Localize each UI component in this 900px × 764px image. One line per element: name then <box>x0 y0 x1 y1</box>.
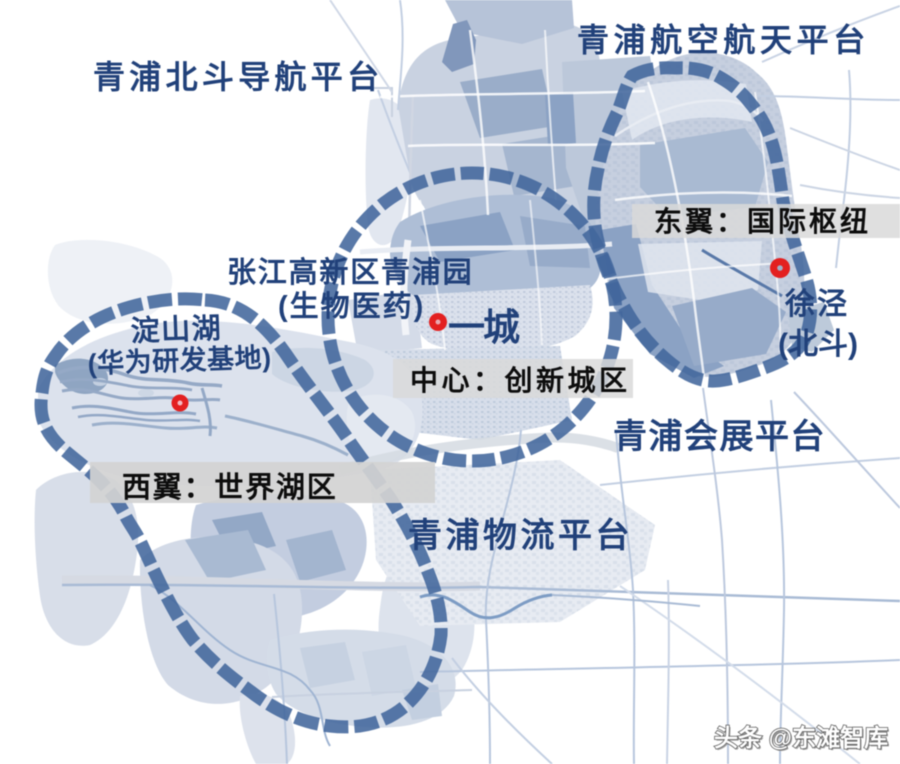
svg-text:张江高新区青浦园: 张江高新区青浦园 <box>227 256 473 289</box>
svg-text:中心：创新城区: 中心：创新城区 <box>410 365 631 396</box>
svg-text:(北斗): (北斗) <box>778 328 858 361</box>
svg-text:青浦航空航天平台: 青浦航空航天平台 <box>577 22 870 58</box>
svg-text:淀山湖: 淀山湖 <box>130 312 223 348</box>
svg-text:(华为研发基地): (华为研发基地) <box>87 342 272 379</box>
svg-text:(生物医药): (生物医药) <box>278 290 425 323</box>
svg-text:头条 @东滩智库: 头条 @东滩智库 <box>714 724 888 752</box>
svg-text:东翼：国际枢纽: 东翼：国际枢纽 <box>654 205 871 237</box>
svg-text:徐泾: 徐泾 <box>784 287 849 321</box>
svg-text:一城: 一城 <box>448 307 520 348</box>
svg-text:青浦北斗导航平台: 青浦北斗导航平台 <box>93 59 383 95</box>
svg-text:西翼：世界湖区: 西翼：世界湖区 <box>122 471 338 504</box>
svg-text:青浦物流平台: 青浦物流平台 <box>408 517 633 555</box>
svg-text:青浦会展平台: 青浦会展平台 <box>613 418 826 456</box>
